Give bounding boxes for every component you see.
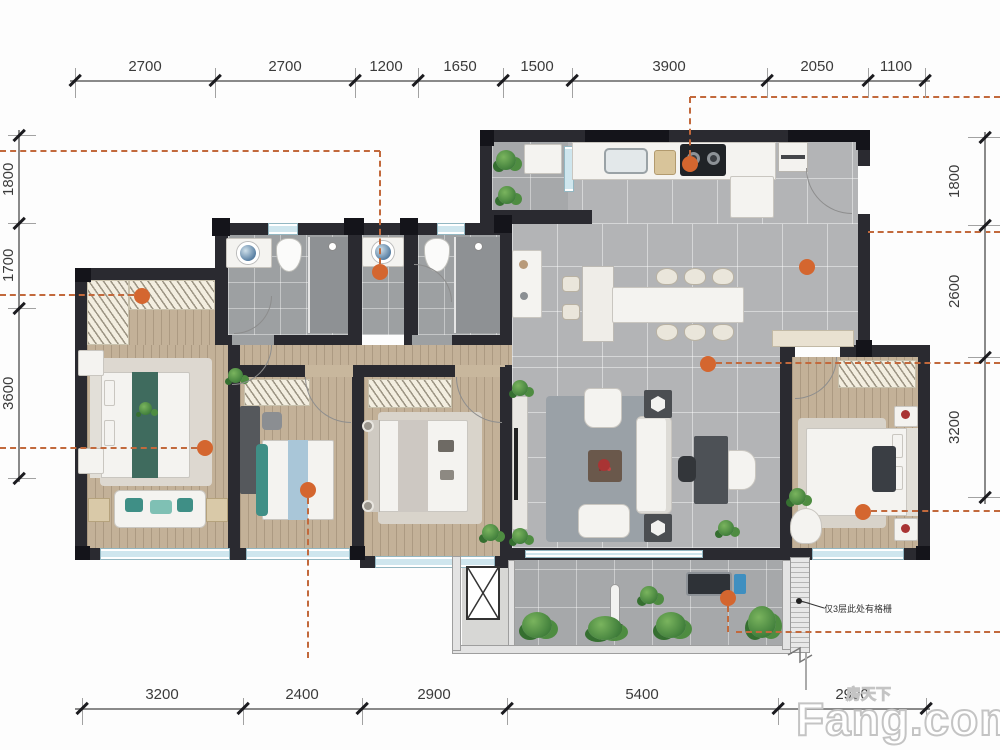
bedroom4-armchair — [790, 508, 822, 544]
master-window — [100, 548, 230, 560]
dining-chair — [712, 324, 734, 341]
floor-plan: 仅3层此处有格栅 2700 2700 1200 1650 1500 3900 2… — [0, 0, 1000, 750]
dining-stool — [562, 276, 580, 292]
plant-icon — [656, 612, 686, 638]
bed-tray-items — [440, 470, 454, 480]
plant-icon — [512, 380, 528, 396]
dim-ext — [572, 68, 573, 98]
dining-chair — [684, 324, 706, 341]
accent-chair — [728, 450, 756, 490]
ref-dash-line — [689, 97, 691, 156]
ref-dash-line — [727, 606, 729, 632]
plant-icon — [789, 488, 806, 505]
dim-label: 1100 — [866, 58, 926, 75]
dim-ext — [8, 223, 36, 224]
dining-chair — [656, 324, 678, 341]
sideboard-item — [519, 260, 528, 269]
dim-ext — [215, 68, 216, 98]
closet-wood-floor — [129, 310, 215, 345]
bedroom2-bed-stripe — [288, 440, 308, 520]
wall-pillar — [344, 218, 364, 235]
watermark-brand: Fang.com — [796, 692, 1000, 746]
bedroom2-headboard — [256, 444, 268, 516]
entry-shoe-cabinet — [772, 330, 854, 347]
bench-pillow — [125, 498, 143, 512]
marker-dot — [197, 440, 213, 456]
fridge-door-line — [781, 155, 805, 159]
dim-label: 2700 — [255, 58, 315, 75]
dim-label: 3900 — [639, 58, 699, 75]
dim-label: 1200 — [356, 58, 416, 75]
bedroom3-door-gap — [455, 365, 505, 377]
dining-table — [612, 287, 744, 323]
cutting-board-icon — [654, 150, 676, 175]
bed-laptop-tray — [872, 446, 896, 492]
marker-dot — [855, 504, 871, 520]
balcony-parapet — [452, 645, 792, 654]
side-table — [88, 498, 110, 522]
pillow — [104, 420, 115, 446]
bench-pillow — [177, 498, 193, 512]
armchair — [584, 388, 622, 428]
dim-ext — [507, 698, 508, 725]
dining-chair — [712, 268, 734, 285]
dim-label: 2050 — [787, 58, 847, 75]
wall-pillar — [788, 130, 858, 142]
dim-label: 5400 — [612, 686, 672, 703]
bedpost-icon — [362, 500, 374, 512]
marker-dot — [700, 356, 716, 372]
wall-pillar — [212, 218, 230, 236]
wall-pillar — [856, 130, 870, 150]
dim-label: 2900 — [404, 686, 464, 703]
plant-icon — [588, 616, 622, 640]
plant-icon — [496, 150, 516, 170]
nightstand-decor — [901, 524, 910, 533]
bedroom3-headboard — [368, 420, 380, 512]
grille-annotation: 仅3层此处有格栅 — [824, 602, 892, 615]
vanity-sink-icon — [372, 241, 394, 263]
plant-icon — [139, 402, 152, 415]
desk — [694, 436, 728, 504]
burner-icon — [707, 152, 720, 165]
wall-segment — [222, 223, 512, 235]
wall-segment — [352, 377, 364, 548]
bedroom2-chair — [262, 412, 282, 430]
bench-pillow — [150, 500, 172, 514]
bedpost-icon — [362, 420, 374, 432]
sofa — [636, 416, 672, 514]
ref-dash-line — [690, 96, 1000, 98]
sideboard-item — [520, 292, 528, 300]
bath1-sink-icon — [237, 242, 259, 264]
plant-icon — [718, 520, 734, 536]
dim-line-right — [984, 132, 986, 504]
coffee-table-flowers — [598, 459, 610, 471]
dim-label: 3200 — [946, 397, 962, 457]
bathroom2-shower-floor — [456, 237, 500, 333]
ac-platform-icon — [466, 566, 500, 620]
dim-ext — [767, 68, 768, 98]
plant-icon — [522, 612, 552, 638]
pillow — [104, 380, 115, 406]
bedroom2-window — [246, 548, 350, 560]
closet-rack-vertical — [87, 280, 129, 345]
dim-label: 1500 — [507, 58, 567, 75]
marker-dot — [720, 590, 736, 606]
bedroom3-closet — [368, 379, 452, 408]
wall-segment — [500, 223, 512, 345]
wall-pillar — [350, 546, 365, 560]
wall-pillar — [494, 215, 512, 233]
kitchen-lower-cabinet — [730, 176, 774, 218]
marker-dot — [134, 288, 150, 304]
marker-dot — [799, 259, 815, 275]
master-door-gap — [232, 335, 274, 345]
dining-chair — [684, 268, 706, 285]
dim-label: 3200 — [132, 686, 192, 703]
wall-segment — [348, 223, 362, 345]
wall-pillar — [585, 130, 669, 142]
marker-dot — [300, 482, 316, 498]
dim-ext — [418, 68, 419, 98]
dim-ext — [82, 698, 83, 725]
kitchen-sink-icon — [604, 148, 648, 174]
dim-label: 1650 — [430, 58, 490, 75]
dim-ext — [8, 308, 36, 309]
bed-tray-items — [438, 440, 454, 452]
wall-pillar — [75, 546, 90, 560]
bedroom4-headboard — [906, 428, 918, 516]
bath1-shower-glass — [308, 237, 310, 333]
dim-ext — [8, 135, 36, 136]
wall-segment — [75, 268, 225, 280]
dim-ext — [778, 698, 779, 725]
chaise-lounge — [578, 504, 630, 538]
marker-dot — [372, 264, 388, 280]
bath2-door-gap — [412, 335, 452, 345]
ref-dash-line — [0, 150, 380, 152]
side-table-hex — [644, 514, 672, 542]
dim-ext — [243, 698, 244, 725]
dim-label: 2700 — [115, 58, 175, 75]
wall-segment — [918, 345, 930, 560]
wall-pillar — [856, 340, 872, 357]
dim-label: 1800 — [0, 149, 16, 209]
living-balcony-door — [525, 550, 703, 558]
ref-dash-line — [716, 362, 1000, 364]
balcony-rail-divider — [508, 560, 515, 646]
dim-label: 1700 — [0, 235, 16, 295]
ref-dash-line — [307, 498, 309, 658]
bedroom4-window — [812, 548, 904, 560]
master-bed-runner — [132, 372, 158, 478]
ref-dash-line — [0, 294, 134, 296]
grille-strip — [790, 557, 810, 653]
dining-chair — [656, 268, 678, 285]
ref-dash-line — [736, 631, 1000, 633]
dining-stool — [562, 304, 580, 320]
plant-icon — [640, 586, 658, 604]
nightstand-decor — [901, 410, 910, 419]
bathroom1-shower-floor — [310, 237, 348, 333]
marker-dot — [682, 156, 698, 172]
wall-pillar — [480, 130, 494, 146]
dining-island — [582, 266, 614, 342]
desk-chair — [678, 456, 696, 482]
bedroom2-closet — [244, 379, 310, 406]
dim-label: 3600 — [0, 363, 16, 423]
ref-dash-line — [871, 510, 1000, 512]
dim-label: 2600 — [946, 261, 962, 321]
bath1-showerhead-icon — [328, 242, 337, 251]
ref-dash-line — [379, 151, 381, 264]
wall-pillar — [916, 546, 930, 560]
plant-icon — [512, 528, 528, 544]
balcony-rail-left — [452, 556, 461, 651]
plant-icon — [482, 524, 499, 541]
dim-ext — [362, 698, 363, 725]
bathroom2-window — [437, 223, 465, 235]
wall-pillar — [400, 218, 418, 235]
bath2-showerhead-icon — [474, 242, 483, 251]
wall-pillar — [75, 268, 91, 282]
bath2-shower-glass — [454, 237, 456, 333]
sideboard — [512, 250, 542, 318]
dim-ext — [503, 68, 504, 98]
dim-label: 2400 — [272, 686, 332, 703]
wall-segment — [75, 268, 87, 560]
dim-ext — [75, 68, 76, 98]
side-table-hex — [644, 390, 672, 418]
plant-icon — [748, 606, 776, 638]
tv-icon — [514, 428, 518, 500]
dim-label: 1800 — [946, 151, 962, 211]
dim-ext — [8, 478, 36, 479]
ref-dash-line — [0, 447, 197, 449]
nightstand — [78, 448, 104, 474]
plant-icon — [498, 186, 516, 204]
bedroom4-closet — [838, 360, 916, 388]
nightstand — [78, 350, 104, 376]
bathroom1-window — [268, 223, 298, 235]
washing-machine — [524, 144, 562, 174]
wall-segment — [858, 214, 870, 357]
treadmill-console — [734, 574, 746, 594]
bedroom2-door-gap — [305, 365, 353, 377]
bedroom3-bed-runner — [398, 420, 428, 512]
side-table — [206, 498, 228, 522]
